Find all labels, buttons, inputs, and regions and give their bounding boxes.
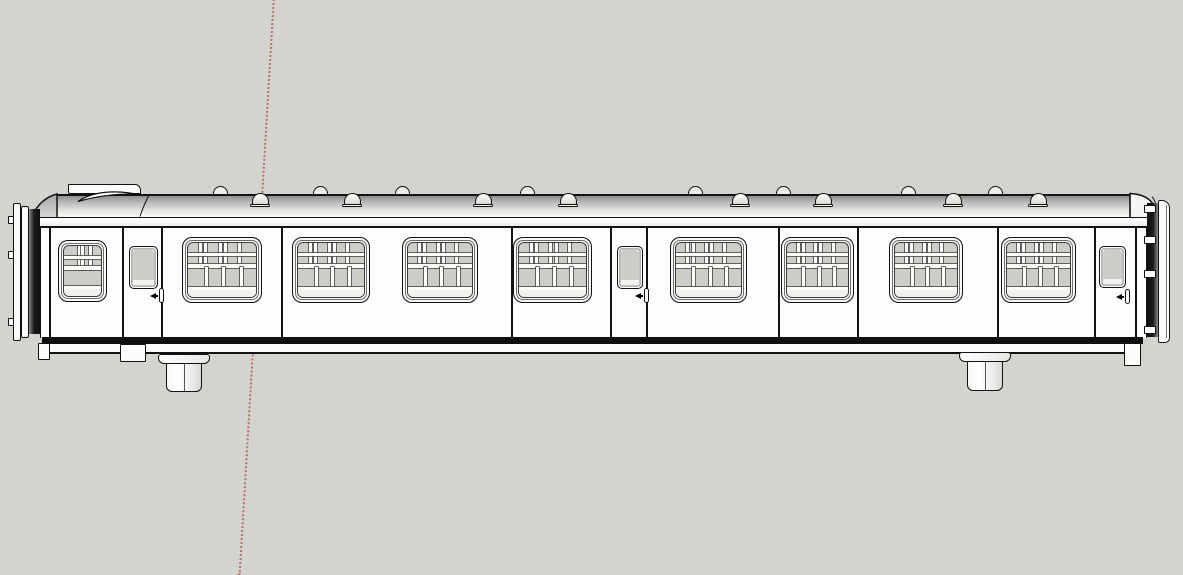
door-window: [129, 246, 158, 289]
window-partition-bar: [440, 267, 443, 287]
door-window-glass: [133, 250, 154, 285]
window-partition-bar: [315, 267, 318, 287]
window-partition-bar: [709, 267, 712, 287]
door-handle-arrow-tail: [155, 295, 158, 297]
left-hinge-tab-icon: [8, 318, 14, 326]
window-vent-rail: [408, 253, 472, 256]
roof-vent-base: [250, 204, 270, 207]
carriage-roof[interactable]: [56, 194, 1130, 217]
window-partition-bar: [692, 267, 695, 287]
roof-end-board: [68, 184, 141, 194]
left-end-plate: [13, 203, 21, 341]
body-panel-line: [857, 228, 859, 338]
window-glass-lower: [519, 290, 586, 297]
door-handle-arrow-tail: [640, 295, 643, 297]
window-vent-rail: [188, 253, 256, 256]
underframe-step: [1124, 343, 1141, 366]
window-vent-rail: [298, 253, 364, 256]
window-partition-bar: [833, 267, 836, 287]
right-end-plate: [1158, 200, 1170, 343]
window-partition-bar: [911, 267, 914, 287]
window-vent-rail: [64, 266, 101, 270]
roof-vent-base: [473, 204, 493, 207]
window-vent-rail: [64, 256, 101, 259]
left-hinge-tab-icon: [8, 251, 14, 259]
door-window-glass-lower: [621, 280, 639, 285]
window-glass: [187, 242, 257, 298]
window-glass: [675, 242, 742, 298]
passenger-window[interactable]: [182, 237, 262, 303]
window-glass: [407, 242, 473, 298]
passenger-window[interactable]: [402, 237, 478, 303]
door-window: [1099, 246, 1126, 288]
window-glass-lower: [188, 290, 256, 297]
left-end-shadow-gap: [29, 209, 40, 334]
window-partition-bar: [424, 267, 427, 287]
window-glass-lower: [408, 290, 472, 297]
roof-vent-base: [730, 204, 750, 207]
left-end-plate: [21, 206, 29, 338]
window-partition-bar: [553, 267, 556, 287]
roof-vent-base: [1028, 204, 1048, 207]
window-glass-lower: [787, 290, 848, 297]
cylinder-center-line: [184, 364, 185, 391]
window-vent-rail: [1007, 253, 1070, 256]
window-glass-lower: [1007, 290, 1070, 297]
roof-vent-base: [558, 204, 578, 207]
door-handle[interactable]: [1125, 289, 1130, 304]
window-glass-lower: [676, 290, 741, 297]
door-handle[interactable]: [159, 288, 164, 303]
passenger-window[interactable]: [889, 237, 963, 303]
left-hinge-tab-icon: [8, 216, 14, 224]
window-partition-bar: [205, 267, 208, 287]
passenger-window[interactable]: [513, 237, 592, 303]
door-window-glass-lower: [133, 280, 154, 285]
underframe-step: [120, 344, 146, 362]
passenger-window[interactable]: [1001, 237, 1076, 303]
underframe-cylinder-body[interactable]: [166, 363, 202, 392]
window-partition-bar: [536, 267, 539, 287]
window-vent-rail: [787, 253, 848, 256]
passenger-window[interactable]: [781, 237, 854, 303]
door-window-glass: [621, 250, 639, 285]
window-glass: [894, 242, 958, 298]
body-panel-line: [281, 228, 283, 338]
body-panel-line: [997, 228, 999, 338]
modeling-viewport[interactable]: [0, 0, 1183, 569]
door-window-glass-lower: [1103, 279, 1122, 284]
passenger-window[interactable]: [292, 237, 370, 303]
door-window-glass: [1103, 250, 1122, 284]
window-partition-bar: [331, 267, 334, 287]
door-handle-arrow-tail: [1121, 296, 1124, 298]
window-partition-bar: [818, 267, 821, 287]
window-partition-bar: [570, 267, 573, 287]
window-glass: [518, 242, 587, 298]
body-panel-line: [778, 228, 780, 338]
roof-vent-base: [342, 204, 362, 207]
right-hinge-block-icon: [1144, 326, 1156, 334]
window-vent-rail: [676, 253, 741, 256]
window-glass: [297, 242, 365, 298]
underframe-step: [38, 343, 50, 360]
window-glass-lower: [895, 290, 957, 297]
window-glass: [1006, 242, 1071, 298]
railway-carriage-model[interactable]: [0, 0, 1183, 569]
right-hinge-block-icon: [1144, 236, 1156, 244]
right-hinge-block-icon: [1144, 205, 1156, 213]
door-window: [617, 246, 643, 289]
underframe-cylinder-body[interactable]: [967, 361, 1003, 391]
passenger-window[interactable]: [670, 237, 747, 303]
window-partition-bar: [222, 267, 225, 287]
door-handle[interactable]: [644, 288, 649, 303]
end-compartment-window[interactable]: [58, 240, 107, 302]
window-partition-bar: [926, 267, 929, 287]
solebar-band: [42, 337, 1143, 344]
window-partition-bar: [240, 267, 243, 287]
window-vent-rail: [895, 253, 957, 256]
window-vent-rail: [519, 253, 586, 256]
window-glass-lower: [298, 290, 364, 297]
roof-vent-base: [813, 204, 833, 207]
roof-vent-base: [943, 204, 963, 207]
right-end-plate-ridge: [1166, 205, 1167, 338]
window-partition-bar: [802, 267, 805, 287]
window-partition-bar: [725, 267, 728, 287]
cylinder-center-line: [985, 362, 986, 390]
window-partition-bar: [457, 267, 460, 287]
window-glass: [63, 245, 102, 297]
cantrail-band: [31, 217, 1148, 228]
body-panel-line: [49, 228, 51, 338]
right-hinge-block-icon: [1144, 270, 1156, 278]
window-glass-lower: [64, 289, 101, 296]
window-partition-bar: [1055, 267, 1058, 287]
window-partition-bar: [348, 267, 351, 287]
window-partition-bar: [1023, 267, 1026, 287]
window-glass: [786, 242, 849, 298]
window-partition-bar: [1039, 267, 1042, 287]
window-partition-bar: [942, 267, 945, 287]
